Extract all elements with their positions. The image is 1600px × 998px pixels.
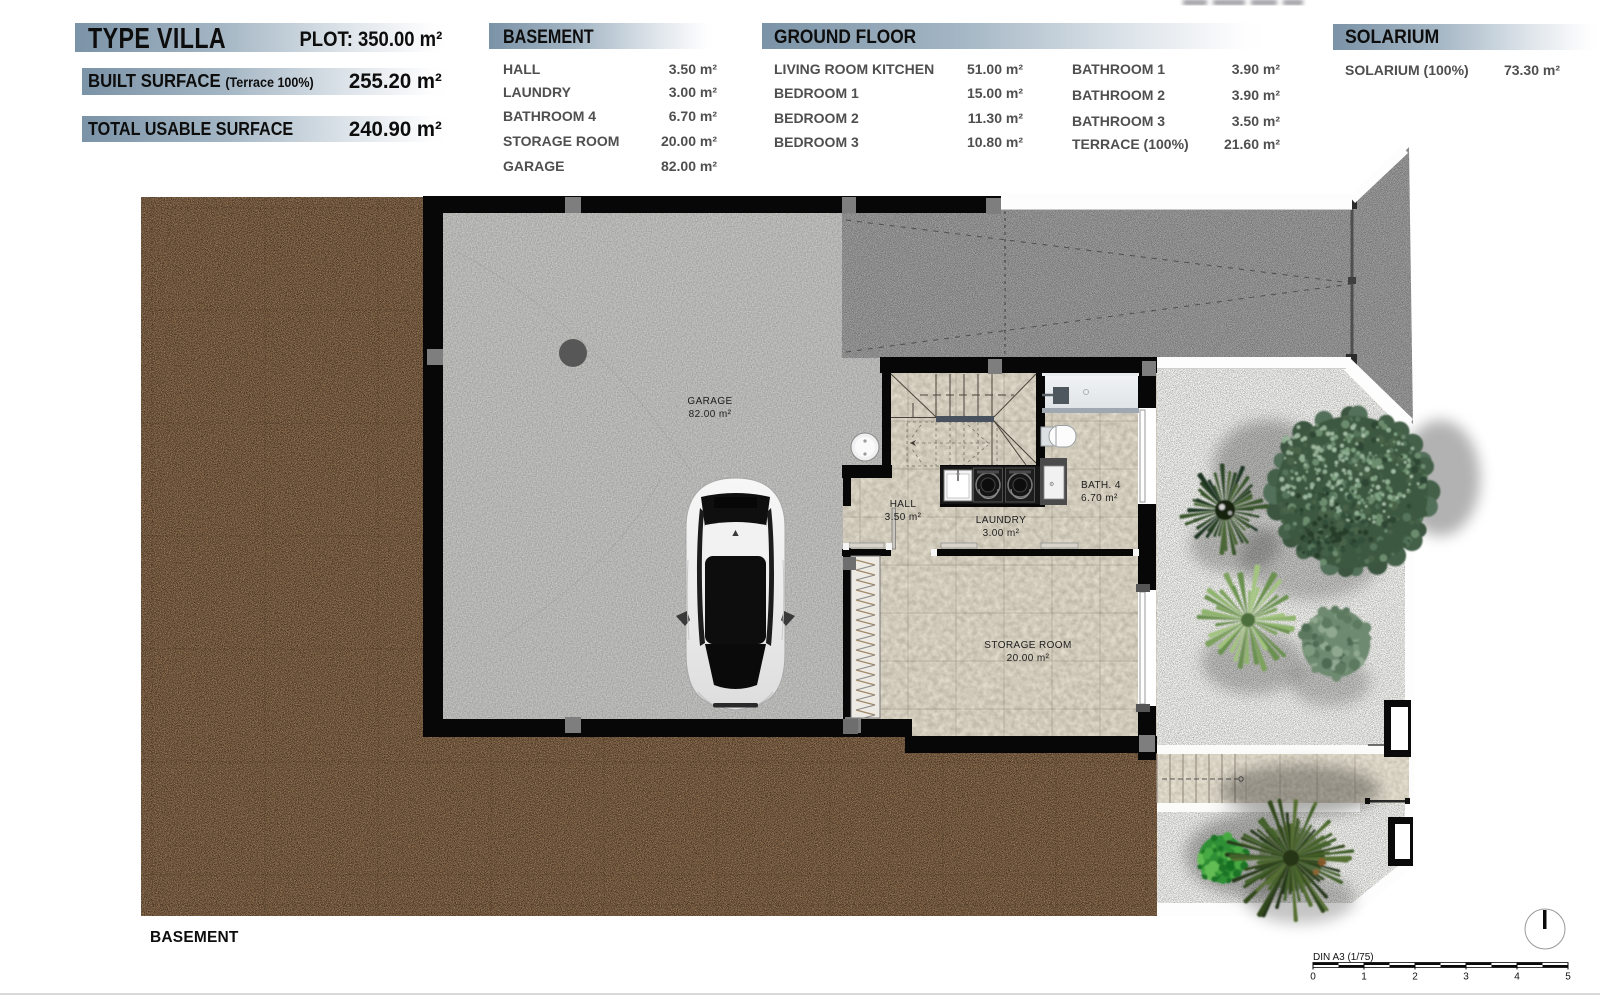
svg-text:2: 2 (1412, 972, 1418, 983)
svg-text:3.00 m²: 3.00 m² (983, 528, 1020, 539)
svg-text:3: 3 (1463, 972, 1469, 983)
svg-text:0: 0 (1310, 972, 1316, 983)
svg-text:GARAGE: GARAGE (687, 396, 732, 407)
svg-text:4: 4 (1514, 972, 1520, 983)
svg-text:6.70 m²: 6.70 m² (1081, 493, 1118, 504)
svg-text:82.00 m²: 82.00 m² (689, 409, 732, 420)
svg-text:1: 1 (1361, 972, 1367, 983)
svg-text:LAUNDRY: LAUNDRY (976, 515, 1026, 526)
svg-text:DIN A3 (1/75): DIN A3 (1/75) (1313, 952, 1374, 963)
svg-text:STORAGE ROOM: STORAGE ROOM (984, 640, 1071, 651)
svg-text:20.00 m²: 20.00 m² (1007, 653, 1050, 664)
svg-text:3.50 m²: 3.50 m² (885, 512, 922, 523)
svg-text:BATH. 4: BATH. 4 (1081, 480, 1121, 491)
svg-text:5: 5 (1565, 972, 1571, 983)
svg-text:HALL: HALL (890, 499, 917, 510)
svg-text:⚙: ⚙ (1049, 481, 1054, 488)
